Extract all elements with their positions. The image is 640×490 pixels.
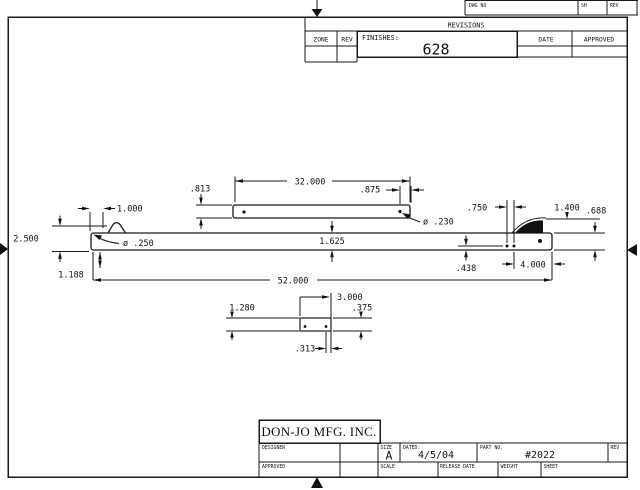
dim-bar-length: 52.000 xyxy=(278,277,309,287)
dwg-no-label: DWG NO xyxy=(469,3,486,9)
center-mark-left-icon xyxy=(0,243,8,255)
finishes-label: FINISHES: xyxy=(362,34,399,42)
part-no-label: PART NO. xyxy=(480,445,503,451)
dim-rod-height: .813 xyxy=(190,185,210,195)
dim-plate-offset: 1.280 xyxy=(229,304,255,314)
sheet-border xyxy=(8,17,627,477)
date-value: 4/5/04 xyxy=(418,450,454,461)
dim-plate-length: 3.000 xyxy=(337,293,363,303)
rod-view xyxy=(233,205,410,218)
revisions-title: REVISIONS xyxy=(448,22,485,30)
sh-label: SH xyxy=(581,3,587,9)
dim-hole-height: .438 xyxy=(456,264,476,274)
rod-left-hole xyxy=(242,210,245,213)
revisions-table: REVISIONS ZONE REV FINISHES: 628 DATE AP… xyxy=(305,17,627,62)
approved-header: APPROVED xyxy=(584,37,615,44)
weight-label: WEIGHT xyxy=(501,464,518,470)
bar-clip xyxy=(108,223,126,233)
dim-latch-offset: 1.400 xyxy=(554,204,580,214)
dim-bar-height: 1.625 xyxy=(319,237,345,247)
date-header: DATE xyxy=(538,37,553,44)
dim-clip-offset: 1.000 xyxy=(117,205,143,215)
plate-hole-a xyxy=(304,325,307,328)
dim-plate-height: .375 xyxy=(352,304,372,314)
top-strip: DWG NO SH REV xyxy=(465,0,638,15)
dim-end-height: .688 xyxy=(586,207,606,217)
dim-rod-hole-offset: .875 xyxy=(360,186,380,196)
bar-latch xyxy=(515,220,543,233)
plate-hole-b xyxy=(325,325,328,328)
rev-strip-label: REV xyxy=(610,3,619,9)
company-name: DON-JO MFG. INC. xyxy=(261,424,376,439)
release-date-label: RELEASE DATE xyxy=(440,464,475,470)
rev-label: REV xyxy=(611,445,620,451)
center-mark-right-icon xyxy=(627,244,637,256)
bar-dimensions: ø .250 1.625 1.000 2.500 1.188 xyxy=(13,200,606,287)
designer-label: DESIGNER xyxy=(262,445,285,451)
scale-label: SCALE xyxy=(381,464,396,470)
dim-plate-hole-offset: .313 xyxy=(295,345,315,355)
dim-rod-hole-dia: ø .230 xyxy=(423,218,454,228)
center-mark-top-icon xyxy=(312,9,323,17)
dim-left-offset: 1.188 xyxy=(58,271,84,281)
bar-hole-a xyxy=(506,245,509,248)
approved-label: APPROVED xyxy=(262,464,285,470)
plate-view xyxy=(300,318,331,331)
center-mark-bottom-icon xyxy=(311,477,323,488)
dim-overall-height: 2.500 xyxy=(13,235,39,245)
rod-right-hole xyxy=(398,210,401,213)
bar-pivot-hole xyxy=(538,239,542,243)
size-value: A xyxy=(386,449,393,463)
plate-dimensions: 3.000 1.280 .375 .313 xyxy=(226,293,372,355)
dim-end-offset: 4.000 xyxy=(520,261,546,271)
title-block: DON-JO MFG. INC. DESIGNER APPROVED SIZE … xyxy=(259,420,627,477)
bar-hole-b xyxy=(513,245,516,248)
rod-dimensions: 32.000 .813 .875 ø .230 xyxy=(190,177,454,230)
drawing-sheet: DWG NO SH REV REVISIONS ZONE REV FINISHE… xyxy=(0,0,640,490)
finishes-value: 628 xyxy=(422,41,449,59)
dim-rod-length: 32.000 xyxy=(295,178,326,188)
dim-bar-hole-dia: ø .250 xyxy=(123,239,154,249)
part-no-value: #2022 xyxy=(525,450,555,461)
sheet-label: SHEET xyxy=(544,464,559,470)
rev-header: REV xyxy=(341,37,353,44)
dim-hole-spacing: .750 xyxy=(467,204,487,214)
zone-header: ZONE xyxy=(313,37,328,44)
